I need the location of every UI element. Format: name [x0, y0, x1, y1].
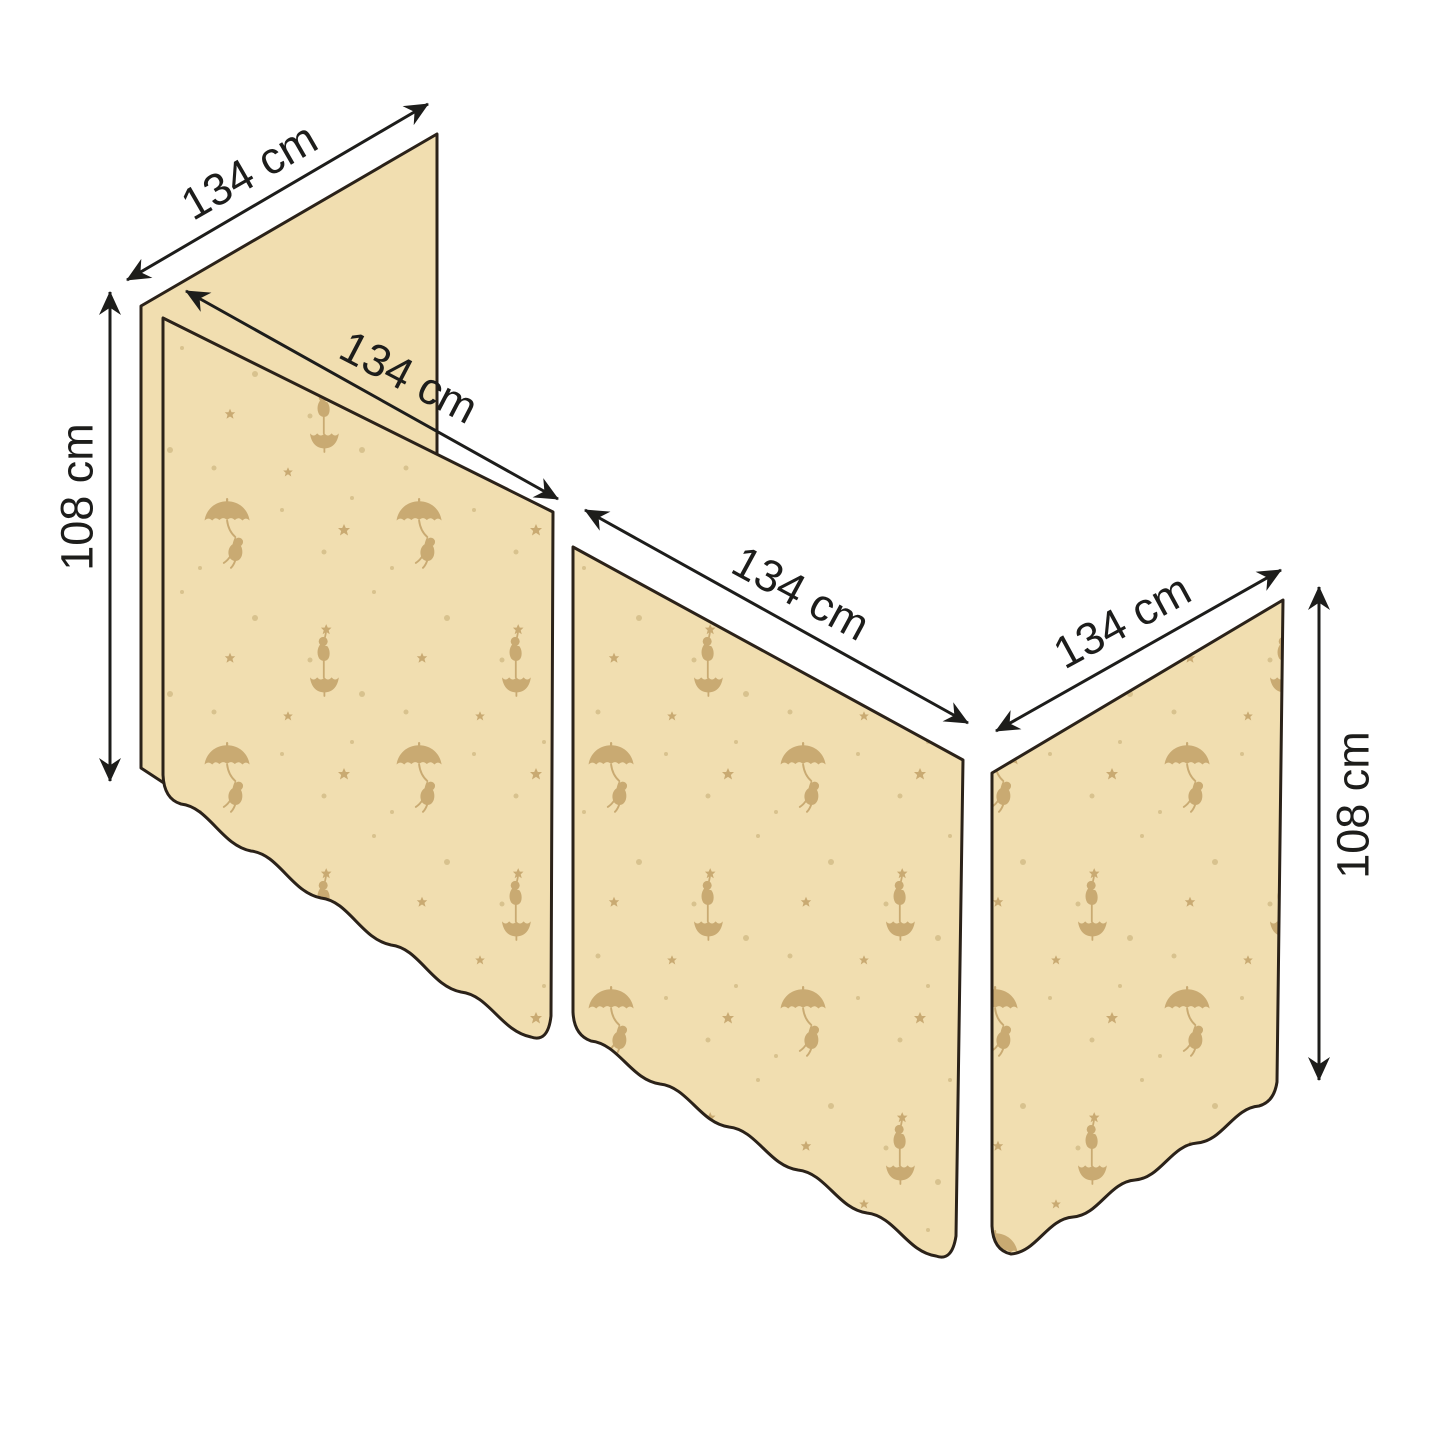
- dimension-label-right-height: 108 cm: [1328, 731, 1379, 879]
- front-middle-panel: [573, 547, 963, 1257]
- right-side-panel: [992, 600, 1283, 1254]
- curtain-dimension-diagram: 134 cm 134 cm 134 cm 134 cm 108 cm 108 c…: [0, 0, 1445, 1445]
- dimension-label-left-height: 108 cm: [52, 423, 103, 571]
- front-left-panel: [163, 318, 553, 1038]
- dimension-label-front-middle-width: 134 cm: [724, 535, 878, 650]
- diagram-canvas: 134 cm 134 cm 134 cm 134 cm 108 cm 108 c…: [0, 0, 1445, 1445]
